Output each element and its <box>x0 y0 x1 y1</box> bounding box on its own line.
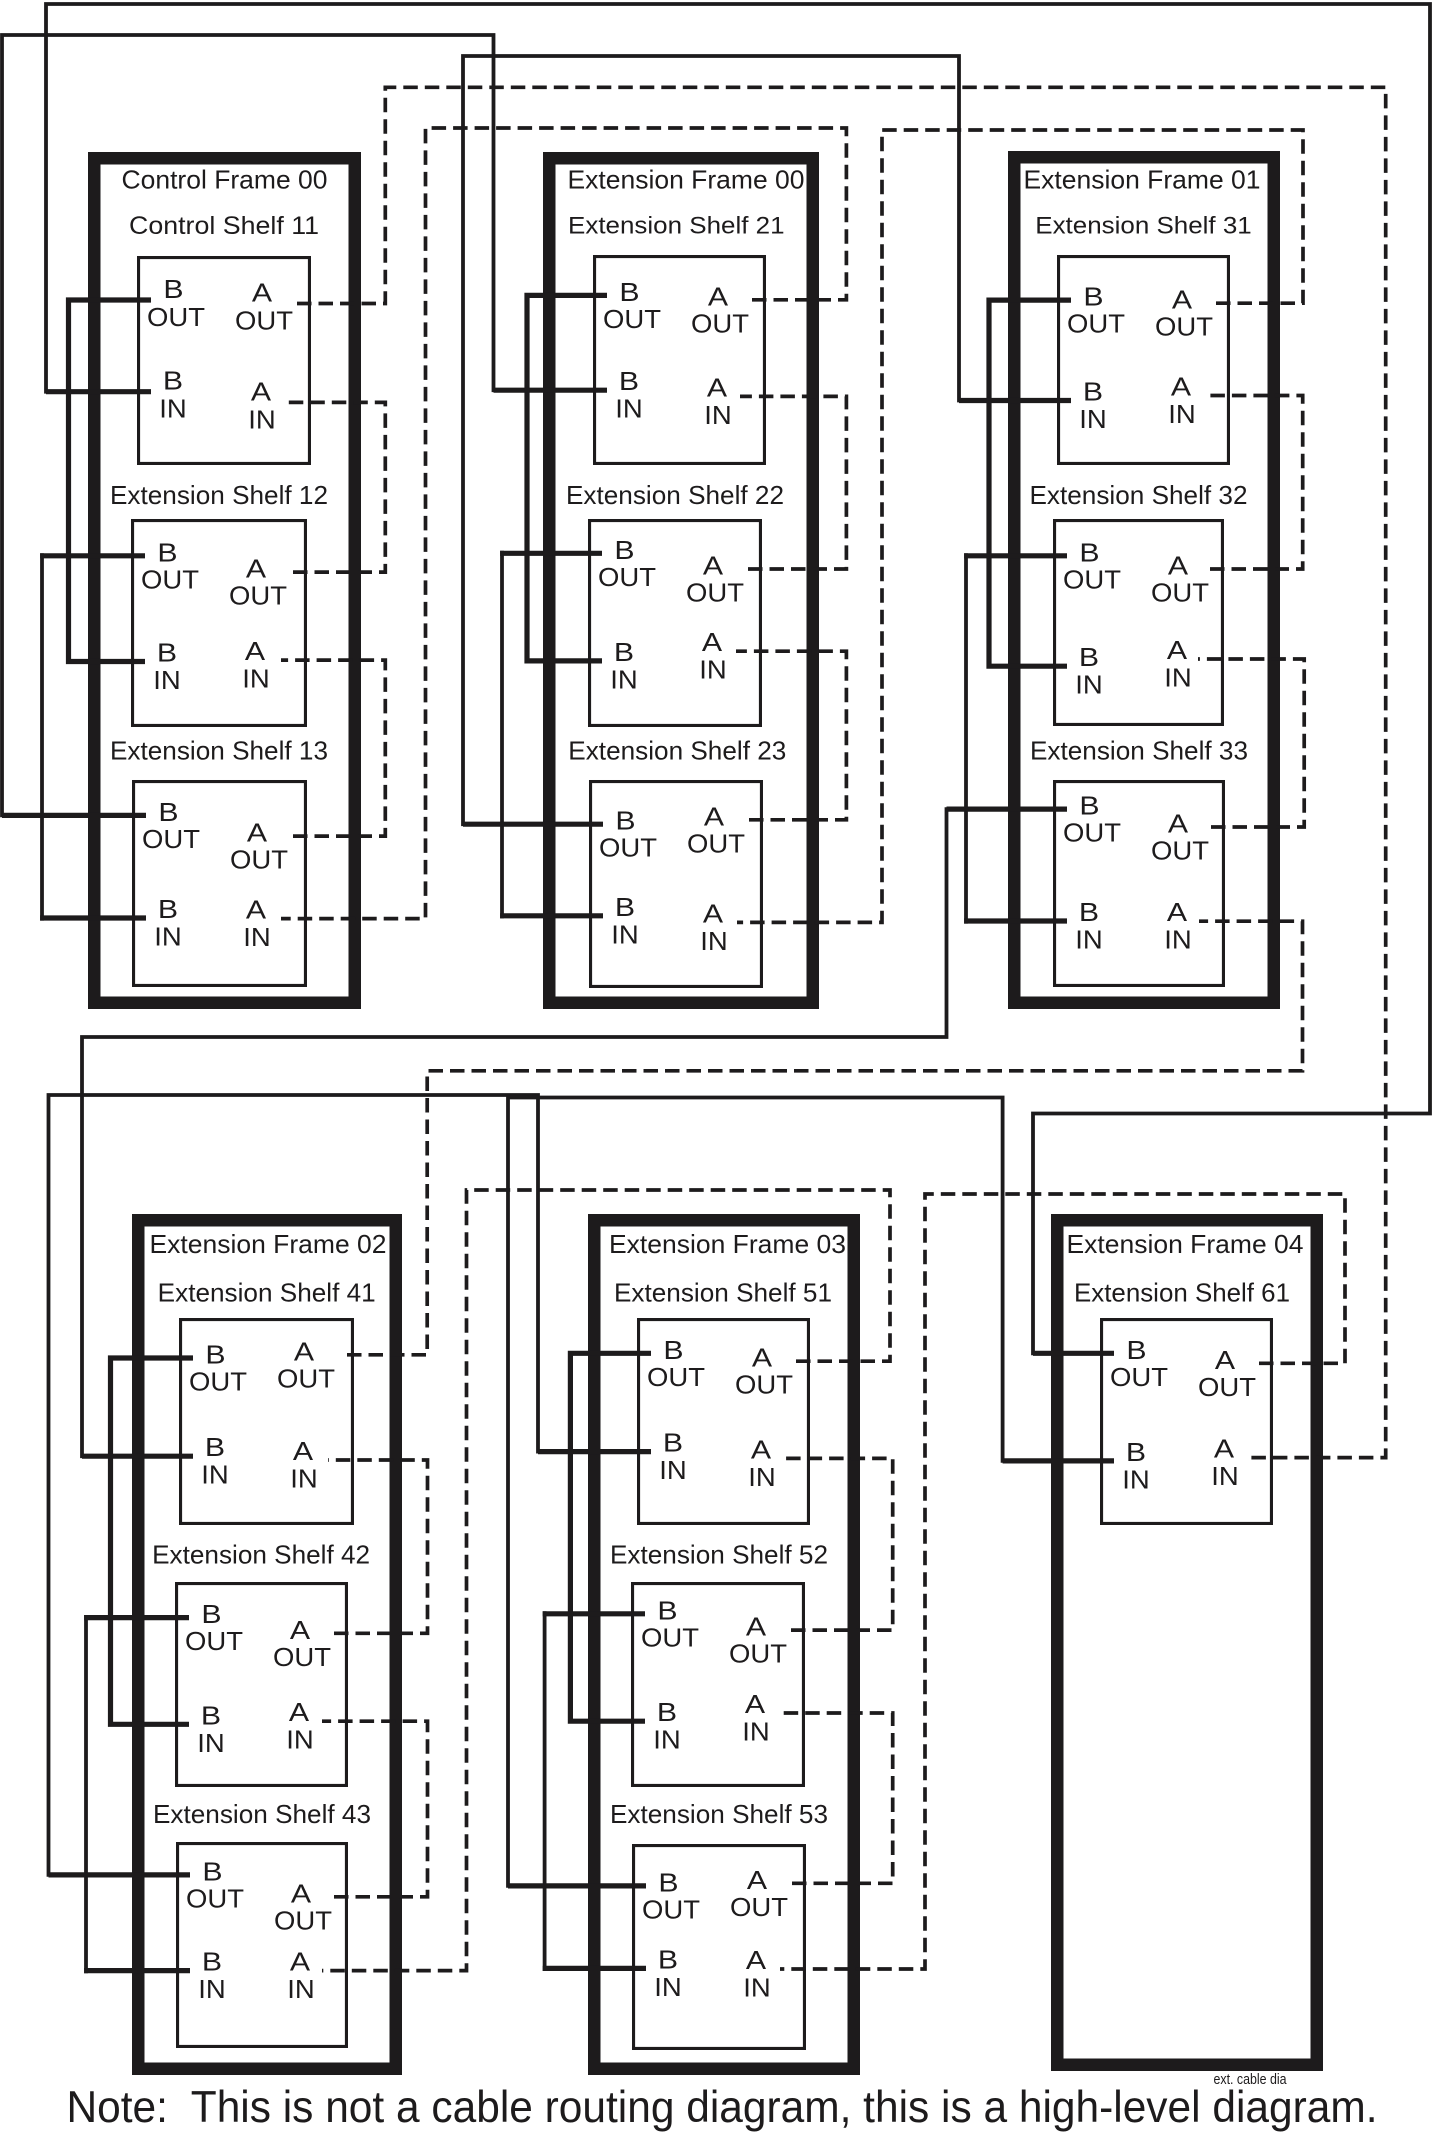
svg-text:B: B <box>1079 537 1099 567</box>
svg-text:Extension Frame 03: Extension Frame 03 <box>609 1229 846 1259</box>
svg-text:IN: IN <box>653 1725 681 1755</box>
svg-text:IN: IN <box>1164 663 1192 693</box>
svg-text:Extension Shelf 53: Extension Shelf 53 <box>610 1799 828 1829</box>
svg-text:OUT: OUT <box>142 824 200 854</box>
svg-text:IN: IN <box>243 922 271 952</box>
svg-text:B: B <box>614 637 634 667</box>
svg-text:B: B <box>1079 897 1099 927</box>
svg-text:Extension Shelf 31: Extension Shelf 31 <box>1035 213 1252 240</box>
svg-text:Extension Shelf 13: Extension Shelf 13 <box>110 736 328 766</box>
svg-text:Extension Shelf 42: Extension Shelf 42 <box>152 1540 370 1570</box>
svg-text:OUT: OUT <box>647 1362 705 1392</box>
svg-text:OUT: OUT <box>1151 836 1209 866</box>
svg-text:IN: IN <box>659 1455 687 1485</box>
svg-text:B: B <box>615 892 635 922</box>
svg-text:A: A <box>1168 551 1189 581</box>
svg-text:Extension Shelf 33: Extension Shelf 33 <box>1030 736 1248 766</box>
svg-text:ext. cable dia: ext. cable dia <box>1214 2071 1287 2088</box>
svg-text:IN: IN <box>248 404 276 434</box>
svg-text:A: A <box>1167 635 1188 665</box>
svg-text:IN: IN <box>154 922 182 952</box>
svg-text:IN: IN <box>611 919 639 949</box>
svg-text:Note: This is not a cable rou: Note: This is not a cable routing diagra… <box>67 2083 1378 2132</box>
svg-text:B: B <box>619 366 639 396</box>
svg-text:IN: IN <box>153 665 181 695</box>
svg-text:B: B <box>163 274 183 304</box>
svg-text:Extension Frame 00: Extension Frame 00 <box>568 165 805 195</box>
svg-text:B: B <box>1083 282 1103 312</box>
svg-text:A: A <box>752 1343 773 1373</box>
svg-text:IN: IN <box>159 394 187 424</box>
svg-text:B: B <box>158 894 178 924</box>
svg-text:OUT: OUT <box>1067 309 1125 339</box>
svg-text:IN: IN <box>1164 925 1192 955</box>
svg-text:Control Frame 00: Control Frame 00 <box>122 165 328 195</box>
svg-text:A: A <box>290 1615 311 1645</box>
svg-text:B: B <box>1079 642 1099 672</box>
svg-text:OUT: OUT <box>274 1905 332 1935</box>
svg-text:OUT: OUT <box>185 1626 243 1656</box>
svg-text:OUT: OUT <box>599 833 657 863</box>
svg-text:IN: IN <box>242 664 270 694</box>
svg-text:IN: IN <box>700 926 728 956</box>
svg-text:B: B <box>658 1867 678 1897</box>
svg-text:OUT: OUT <box>147 302 205 332</box>
svg-text:OUT: OUT <box>1198 1372 1256 1402</box>
svg-text:Control Shelf 11: Control Shelf 11 <box>129 212 319 240</box>
svg-text:IN: IN <box>1168 399 1196 429</box>
svg-text:A: A <box>246 554 267 584</box>
svg-text:A: A <box>1172 285 1193 315</box>
svg-text:A: A <box>703 551 724 581</box>
svg-text:Extension Shelf 51: Extension Shelf 51 <box>614 1278 832 1308</box>
svg-text:Extension Frame 01: Extension Frame 01 <box>1024 165 1261 195</box>
svg-text:OUT: OUT <box>598 562 656 592</box>
svg-text:OUT: OUT <box>1063 564 1121 594</box>
svg-text:OUT: OUT <box>273 1642 331 1672</box>
svg-text:IN: IN <box>743 1973 771 2003</box>
svg-text:A: A <box>1168 809 1189 839</box>
svg-text:IN: IN <box>742 1717 770 1747</box>
svg-text:OUT: OUT <box>1110 1362 1168 1392</box>
svg-text:IN: IN <box>1211 1461 1239 1491</box>
svg-text:OUT: OUT <box>691 308 749 338</box>
svg-text:B: B <box>1079 791 1099 821</box>
svg-text:A: A <box>1171 372 1192 402</box>
svg-text:OUT: OUT <box>1155 312 1213 342</box>
svg-text:IN: IN <box>290 1464 318 1494</box>
svg-text:A: A <box>246 895 267 925</box>
svg-text:B: B <box>205 1340 225 1370</box>
svg-text:A: A <box>1215 1345 1236 1375</box>
svg-text:OUT: OUT <box>230 845 288 875</box>
svg-text:OUT: OUT <box>186 1883 244 1913</box>
svg-text:A: A <box>707 372 728 402</box>
svg-text:IN: IN <box>1075 925 1103 955</box>
svg-text:B: B <box>1126 1437 1146 1467</box>
svg-text:A: A <box>746 1945 767 1975</box>
svg-text:B: B <box>615 806 635 836</box>
svg-text:OUT: OUT <box>1063 818 1121 848</box>
svg-text:B: B <box>202 1947 222 1977</box>
svg-text:A: A <box>745 1689 766 1719</box>
svg-text:B: B <box>657 1595 677 1625</box>
svg-text:A: A <box>702 627 723 657</box>
svg-text:IN: IN <box>699 655 727 685</box>
svg-text:B: B <box>158 797 178 827</box>
svg-text:OUT: OUT <box>735 1370 793 1400</box>
svg-text:Extension Shelf 61: Extension Shelf 61 <box>1074 1278 1290 1308</box>
svg-text:B: B <box>157 537 177 567</box>
svg-text:Extension Shelf 43: Extension Shelf 43 <box>153 1799 371 1829</box>
svg-text:OUT: OUT <box>641 1622 699 1652</box>
svg-text:B: B <box>1083 377 1103 407</box>
svg-text:IN: IN <box>198 1974 226 2004</box>
svg-text:B: B <box>663 1428 683 1458</box>
svg-text:A: A <box>247 818 268 848</box>
svg-text:B: B <box>201 1700 221 1730</box>
svg-text:IN: IN <box>197 1728 225 1758</box>
svg-text:Extension Frame 04: Extension Frame 04 <box>1067 1229 1304 1259</box>
svg-text:OUT: OUT <box>235 306 293 336</box>
svg-text:OUT: OUT <box>686 578 744 608</box>
svg-text:OUT: OUT <box>730 1892 788 1922</box>
svg-text:IN: IN <box>704 400 732 430</box>
svg-text:Extension Shelf 41: Extension Shelf 41 <box>158 1278 376 1308</box>
svg-text:IN: IN <box>1122 1464 1150 1494</box>
svg-text:OUT: OUT <box>642 1894 700 1924</box>
svg-text:OUT: OUT <box>1151 578 1209 608</box>
svg-text:A: A <box>293 1436 314 1466</box>
svg-text:B: B <box>163 366 183 396</box>
svg-text:IN: IN <box>1079 404 1107 434</box>
svg-text:OUT: OUT <box>277 1363 335 1393</box>
svg-text:A: A <box>703 898 724 928</box>
svg-text:IN: IN <box>654 1972 682 2002</box>
svg-text:B: B <box>201 1599 221 1629</box>
svg-text:A: A <box>1167 897 1188 927</box>
svg-text:B: B <box>663 1335 683 1365</box>
svg-text:A: A <box>708 281 729 311</box>
svg-text:B: B <box>657 1697 677 1727</box>
svg-text:A: A <box>746 1612 767 1642</box>
svg-text:Extension Shelf 21: Extension Shelf 21 <box>568 213 785 240</box>
svg-text:A: A <box>1214 1434 1235 1464</box>
svg-text:B: B <box>614 535 634 565</box>
svg-text:IN: IN <box>287 1974 315 2004</box>
svg-text:Extension Shelf 23: Extension Shelf 23 <box>568 736 786 766</box>
svg-text:A: A <box>251 376 272 406</box>
svg-text:OUT: OUT <box>687 828 745 858</box>
svg-text:A: A <box>751 1434 772 1464</box>
svg-text:Extension Shelf 12: Extension Shelf 12 <box>110 480 328 510</box>
svg-text:IN: IN <box>201 1460 229 1490</box>
svg-text:Extension Frame 02: Extension Frame 02 <box>150 1229 387 1259</box>
svg-text:A: A <box>294 1336 315 1366</box>
svg-text:B: B <box>658 1944 678 1974</box>
svg-text:OUT: OUT <box>141 564 199 594</box>
svg-text:A: A <box>289 1697 310 1727</box>
svg-text:B: B <box>157 638 177 668</box>
svg-text:OUT: OUT <box>603 304 661 334</box>
svg-text:IN: IN <box>286 1725 314 1755</box>
svg-text:A: A <box>290 1947 311 1977</box>
svg-text:B: B <box>1126 1335 1146 1365</box>
svg-text:OUT: OUT <box>729 1639 787 1669</box>
svg-text:IN: IN <box>748 1462 776 1492</box>
svg-text:B: B <box>202 1856 222 1886</box>
svg-text:B: B <box>205 1432 225 1462</box>
svg-text:IN: IN <box>610 664 638 694</box>
svg-text:IN: IN <box>1075 670 1103 700</box>
svg-text:A: A <box>747 1865 768 1895</box>
svg-text:A: A <box>252 278 273 308</box>
svg-text:A: A <box>704 801 725 831</box>
svg-text:Extension Shelf 52: Extension Shelf 52 <box>610 1540 828 1570</box>
svg-text:OUT: OUT <box>229 581 287 611</box>
svg-text:A: A <box>291 1878 312 1908</box>
svg-text:Extension Shelf 22: Extension Shelf 22 <box>566 480 784 510</box>
svg-text:B: B <box>619 277 639 307</box>
svg-text:OUT: OUT <box>189 1367 247 1397</box>
svg-text:IN: IN <box>615 394 643 424</box>
svg-text:A: A <box>245 636 266 666</box>
svg-text:Extension Shelf 32: Extension Shelf 32 <box>1030 480 1248 510</box>
